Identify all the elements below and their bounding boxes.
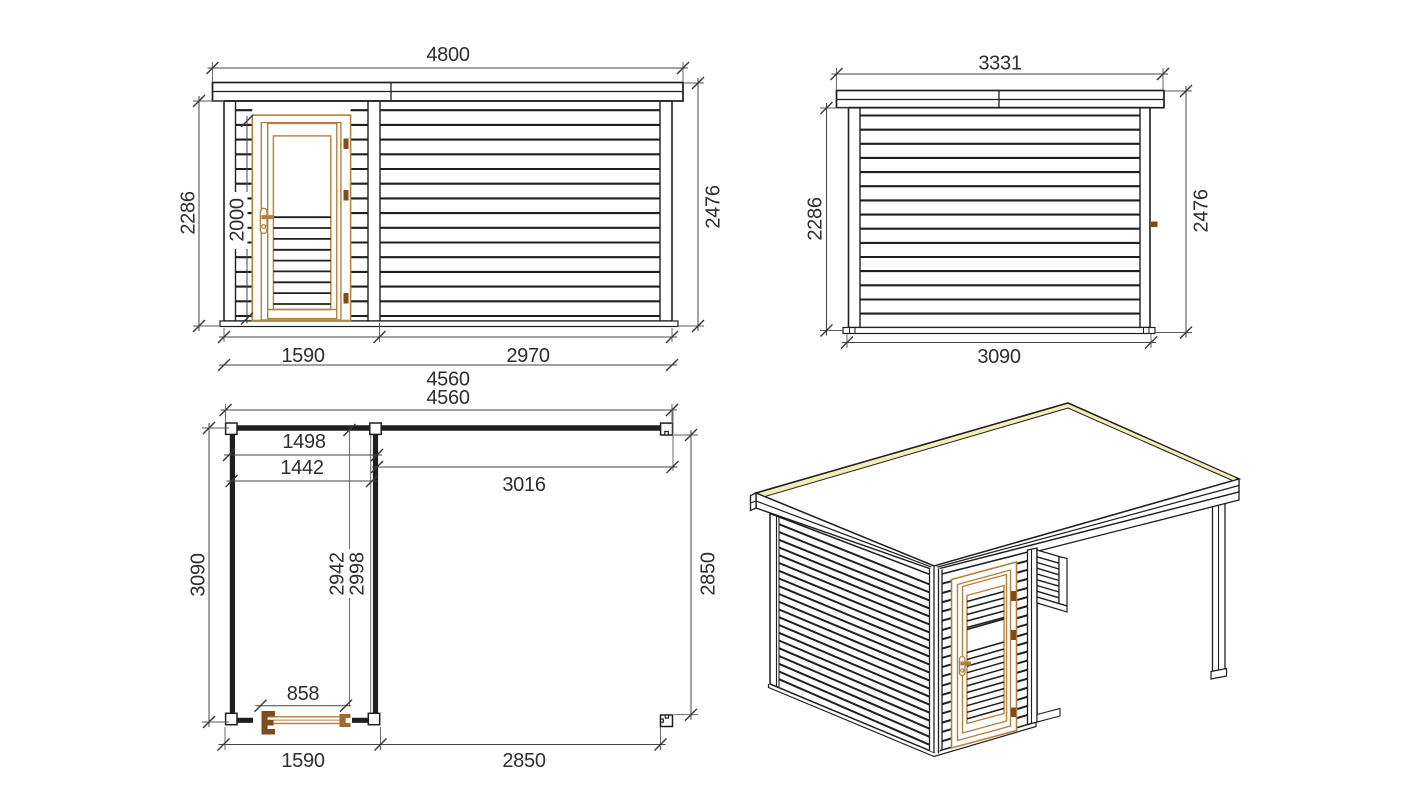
svg-text:2970: 2970 [506, 345, 549, 367]
svg-text:4800: 4800 [426, 44, 469, 66]
svg-text:2850: 2850 [698, 552, 720, 595]
svg-text:2000: 2000 [227, 198, 249, 241]
svg-text:3090: 3090 [977, 346, 1020, 368]
svg-text:2942: 2942 [327, 552, 349, 595]
svg-text:3090: 3090 [188, 553, 210, 596]
svg-text:1442: 1442 [280, 457, 323, 479]
svg-text:2476: 2476 [703, 185, 725, 228]
svg-text:3331: 3331 [978, 53, 1021, 75]
svg-text:3016: 3016 [502, 474, 545, 496]
svg-text:2998: 2998 [347, 552, 369, 595]
svg-text:4560: 4560 [426, 387, 469, 409]
svg-text:2286: 2286 [805, 197, 827, 240]
svg-text:2476: 2476 [1191, 189, 1213, 232]
svg-text:1590: 1590 [281, 750, 324, 772]
svg-text:858: 858 [287, 683, 320, 705]
svg-text:2286: 2286 [178, 191, 200, 234]
svg-text:2850: 2850 [502, 750, 545, 772]
svg-text:1498: 1498 [282, 431, 325, 453]
svg-text:1590: 1590 [281, 345, 324, 367]
